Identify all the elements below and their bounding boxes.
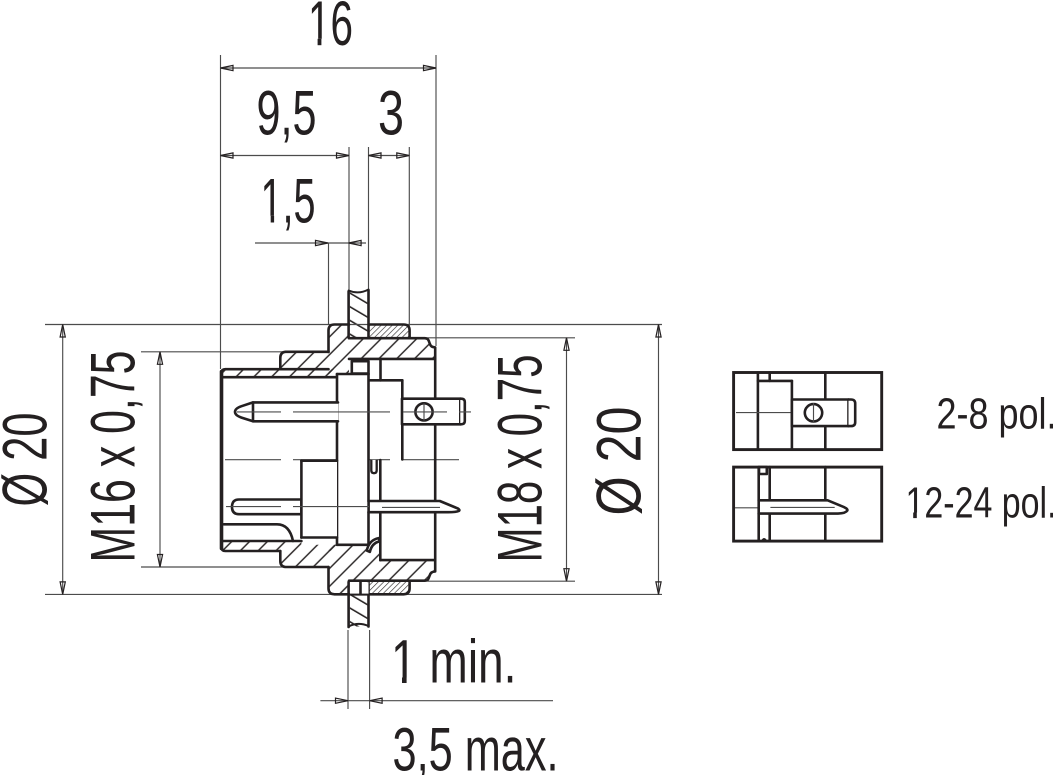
svg-text:16: 16	[308, 0, 353, 59]
svg-text:1,5: 1,5	[261, 166, 316, 236]
svg-text:9,5: 9,5	[257, 79, 317, 149]
svg-text:3: 3	[378, 79, 404, 149]
svg-text:12-24 pol.: 12-24 pol.	[906, 478, 1053, 527]
svg-text:M16 x 0,75: M16 x 0,75	[79, 351, 149, 563]
svg-text:Ø 20: Ø 20	[585, 407, 655, 516]
svg-text:Ø 20: Ø 20	[0, 413, 60, 507]
svg-text:2-8 pol.: 2-8 pol.	[937, 390, 1053, 439]
svg-text:1 min.: 1 min.	[391, 628, 517, 696]
svg-text:M18 x 0,75: M18 x 0,75	[486, 355, 556, 563]
svg-text:3,5 max.: 3,5 max.	[393, 716, 559, 775]
